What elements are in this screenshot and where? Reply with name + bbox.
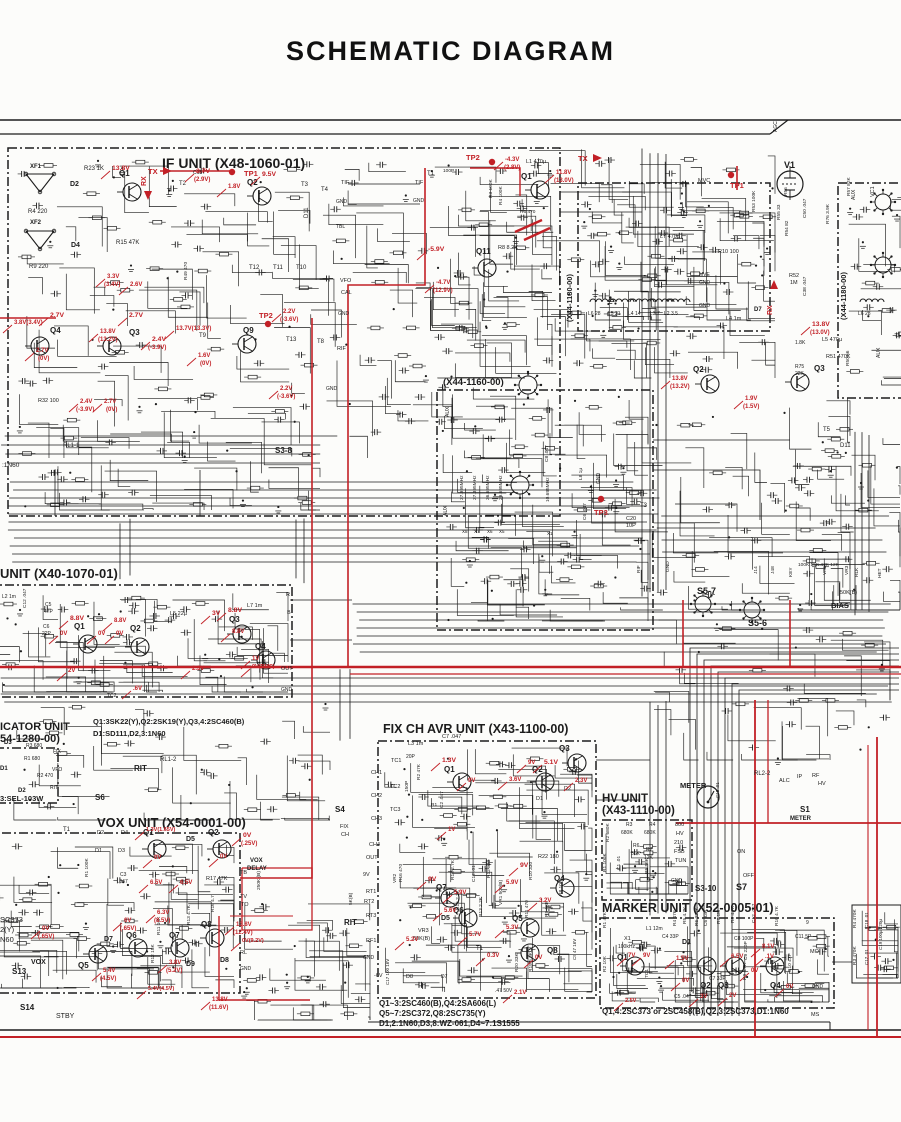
annotation-pointer (509, 868, 518, 876)
mesh-wire (282, 721, 294, 739)
junction-dot (660, 985, 662, 987)
junction-dot (408, 793, 410, 795)
mesh-wire (616, 359, 670, 378)
unit-label-af-unit: UNIT (X40-1070-01) (0, 566, 118, 581)
component-label: Q6 (126, 931, 137, 940)
mesh-wire (629, 400, 643, 419)
component-label: R8 8.2K (498, 245, 518, 251)
component-label: 150P (404, 781, 410, 792)
junction-dot (836, 451, 838, 453)
voltage-annotation: 3.7V (196, 168, 210, 175)
component-label: 9V (363, 872, 370, 878)
mesh-wire (883, 438, 900, 444)
voltage-annotation: -4.3V (505, 157, 519, 163)
transistor-icon (459, 775, 468, 781)
mesh-wire (395, 360, 425, 382)
voltage-annotation: TP1 (730, 181, 744, 190)
rotary-switch-icon (527, 371, 529, 373)
junction-dot (868, 726, 870, 728)
rotary-switch-icon (528, 475, 530, 477)
mesh-wire (236, 666, 251, 682)
component-label: S3-8 (275, 446, 292, 455)
voltage-annotation: (12.4V) (233, 930, 253, 936)
mesh-wire (109, 363, 168, 386)
resistor-icon (594, 365, 603, 369)
junction-dot (574, 400, 576, 402)
component-label: L2 1m (2, 594, 16, 600)
unit-label-final-coil-unit: (X44-1180-00) (839, 272, 848, 320)
resistor-icon (571, 258, 580, 262)
component-label: C12 .047 (751, 903, 757, 923)
mesh-wire (753, 238, 764, 245)
component-label: 100P (443, 168, 454, 174)
resistor-icon (647, 341, 656, 345)
mesh-wire (884, 378, 901, 385)
voltage-annotation: 2.2V (280, 386, 292, 392)
junction-dot (406, 816, 408, 818)
mesh-wire (100, 661, 133, 684)
mesh-wire (479, 795, 533, 838)
rotary-switch-icon (870, 201, 872, 203)
junction-dot (610, 246, 612, 248)
component-label: Q4 (50, 326, 61, 335)
component-label: VR1 500(B) (498, 880, 504, 905)
mesh-wire (246, 1001, 254, 1020)
resistor-icon (843, 631, 852, 635)
component-label: TC2 (107, 693, 117, 699)
component-label: Q8 (547, 946, 558, 955)
component-label: R (286, 592, 290, 598)
component-label: AUX (851, 189, 857, 200)
component-label: HV (818, 781, 826, 787)
mesh-wire (702, 198, 746, 240)
mesh-wire (652, 533, 696, 557)
resistor-icon (201, 396, 210, 400)
component-label: -6V (374, 973, 383, 979)
resistor-icon (726, 168, 735, 172)
resistor-icon (832, 455, 841, 459)
semiconductor-note: D1:SD111,D2,3:1N60 (93, 729, 166, 738)
voltage-annotation: 5.1V (544, 759, 558, 766)
schematic-canvas: IF UNIT (X48-1060-01)(X44-1180-00)(X44-1… (0, 0, 901, 1122)
component-label: CH1 (371, 770, 382, 776)
voltage-annotation: 8.8V (232, 629, 244, 635)
semiconductor-note: Q5~7:2SC372,Q8:2SC735(Y) (379, 1009, 486, 1018)
component-label: MO (810, 949, 820, 955)
component-label: GND (812, 984, 824, 990)
voltage-annotation: (12.9V) (433, 288, 453, 294)
component-label: C9 47 16V (572, 939, 577, 960)
junction-dot (589, 208, 591, 210)
rotary-switch-icon (536, 393, 538, 395)
resistor-icon (863, 463, 872, 467)
mesh-wire (491, 548, 522, 578)
test-point-dot (728, 172, 734, 178)
component-label: V1 (784, 160, 795, 170)
component-label: 36.695MHz (485, 475, 491, 500)
junction-dot (15, 623, 17, 625)
voltage-annotation: 3.8V(3.4V) (14, 320, 43, 326)
rotary-switch-icon (714, 603, 716, 605)
resistor-icon (79, 884, 88, 888)
mesh-wire (66, 227, 76, 241)
junction-dot (97, 160, 99, 162)
rotary-switch-icon (540, 384, 542, 386)
voltage-annotation: 0V (682, 978, 689, 984)
rotary-switch-icon (870, 264, 872, 266)
rotary-switch-icon (518, 393, 520, 395)
mesh-wire (882, 380, 901, 385)
junction-dot (124, 662, 126, 664)
junction-dot (49, 241, 51, 243)
component-label: CH4 (369, 842, 380, 848)
junction-dot (226, 450, 228, 452)
component-label: D7 (104, 936, 113, 943)
component-label: HET (877, 568, 883, 578)
resistor-icon (22, 452, 31, 456)
resistor-icon (613, 326, 622, 330)
junction-dot (443, 838, 445, 840)
resistor-icon (290, 196, 299, 200)
junction-dot (716, 623, 718, 625)
component-label: D3 (4, 740, 12, 746)
mesh-wire (568, 971, 592, 983)
junction-dot (634, 865, 636, 867)
mesh-wire (18, 938, 76, 958)
component-label: STBY (56, 1013, 75, 1020)
mesh-wire (897, 467, 900, 484)
component-label: CH2 (371, 793, 382, 799)
mesh-wire (838, 533, 850, 569)
mesh-wire (692, 551, 729, 576)
resistor-icon (149, 971, 158, 975)
voltage-annotation: 2.3V (192, 666, 204, 672)
junction-dot (260, 181, 262, 183)
junction-dot (515, 237, 517, 239)
resistor-icon (536, 964, 545, 968)
component-label: TO (241, 902, 249, 908)
component-label: AUX (443, 505, 449, 516)
mesh-wire (184, 194, 235, 206)
mesh-wire (28, 423, 49, 458)
component-label: R7 1M (716, 910, 722, 924)
mesh-wire (173, 767, 231, 803)
junction-dot (654, 872, 656, 874)
annotation-pointer (395, 942, 404, 950)
component-label: RT2 (364, 899, 374, 905)
junction-dot (19, 426, 21, 428)
resistor-icon (136, 160, 145, 164)
junction-dot (549, 170, 551, 172)
resistor-icon (825, 449, 834, 453)
resistor-icon (153, 220, 162, 224)
mesh-wire (671, 179, 684, 215)
component-label: T4 (321, 187, 329, 193)
voltage-annotation: 1.9V (745, 396, 757, 402)
component-label: RIF (337, 346, 347, 352)
junction-dot (324, 703, 326, 705)
annotation-pointer (498, 782, 507, 790)
voltage-annotation: TX (578, 154, 588, 163)
resistor-icon (219, 252, 228, 256)
mesh-wire (324, 937, 367, 951)
resistor-icon (407, 326, 416, 330)
component-label: R4 100K (498, 186, 504, 205)
mesh-wire (617, 974, 648, 989)
mesh-wire (301, 1005, 348, 1020)
mesh-wire (583, 901, 592, 921)
mesh-wire (274, 211, 296, 254)
voltage-annotation: (0V) (38, 356, 49, 362)
resistor-icon (349, 944, 358, 948)
junction-dot (614, 302, 616, 304)
resistor-icon (247, 979, 256, 983)
junction-dot (639, 548, 641, 550)
component-label: T12 (249, 265, 260, 271)
component-label: C6 (43, 624, 50, 630)
mesh-wire (522, 199, 548, 206)
mesh-wire (348, 191, 357, 205)
voltage-annotation: .6V (133, 686, 142, 692)
junction-dot (57, 892, 59, 894)
rotary-switch-icon (693, 594, 695, 596)
junction-dot (761, 274, 763, 276)
component-label: TC1 (391, 758, 401, 764)
voltage-annotation: (3.4V) (104, 282, 120, 288)
component-label: B (287, 610, 291, 616)
mesh-wire (23, 979, 77, 988)
voltage-annotation: (0V) (106, 407, 117, 413)
annotation-pointer (185, 174, 194, 182)
component-label: C2 .047 (439, 791, 445, 808)
mesh-wire (28, 277, 42, 294)
mesh-wire (450, 259, 470, 304)
component-label: R4 (649, 822, 656, 828)
component-label: OUT (281, 666, 293, 672)
annotation-pointer (217, 189, 226, 197)
resistor-icon (76, 601, 85, 605)
junction-dot (69, 472, 71, 474)
component-label: X6 (487, 529, 493, 534)
mesh-wire (458, 215, 514, 226)
junction-dot (112, 308, 114, 310)
mesh-wire (769, 654, 814, 677)
mesh-wire (355, 984, 370, 994)
mesh-wire (341, 985, 370, 1003)
annotation-pointer (545, 175, 554, 183)
mesh-wire (194, 468, 237, 490)
junction-dot (349, 403, 351, 405)
resistor-icon (303, 453, 312, 457)
component-label: 37.395MHz (472, 475, 478, 500)
mesh-wire (754, 708, 802, 730)
resistor-icon (598, 232, 607, 236)
mesh-wire (799, 988, 829, 1002)
component-label: Q4 (770, 981, 781, 990)
annotation-pointer (221, 634, 230, 642)
bus-line (725, 678, 899, 1016)
mesh-wire (308, 904, 370, 920)
mesh-wire (298, 761, 330, 770)
component-label: KEY (788, 567, 794, 577)
transistor-icon (129, 939, 147, 957)
voltage-annotation: TP2 (466, 153, 480, 162)
voltage-annotation: 6.5V (180, 880, 192, 886)
resistor-icon (490, 575, 499, 579)
component-label: 10.695MHz (545, 477, 551, 502)
rotary-switch-icon (890, 272, 892, 274)
mesh-wire (680, 491, 715, 536)
junction-dot (504, 917, 506, 919)
voltage-annotation: 11.8V (556, 170, 571, 176)
junction-dot (708, 205, 710, 207)
mesh-wire (532, 219, 552, 254)
junction-dot (208, 858, 210, 860)
junction-dot (15, 904, 17, 906)
component-label: TV (240, 894, 247, 900)
component-label: RIT (344, 918, 357, 927)
component-label: Q1 (444, 765, 455, 774)
component-label: RL (240, 950, 247, 956)
mesh-wire (640, 164, 680, 199)
voltage-annotation: 5.9V (454, 890, 466, 896)
mesh-wire (63, 425, 112, 441)
mesh-wire (883, 975, 898, 978)
component-label: AGC (773, 121, 779, 132)
junction-dot (590, 486, 592, 488)
junction-dot (556, 851, 558, 853)
resistor-icon (23, 898, 32, 902)
component-label: ON (737, 849, 745, 855)
component-label: R76 3.9K (825, 203, 831, 224)
mesh-wire (755, 453, 767, 483)
mesh-wire (682, 202, 741, 211)
junction-dot (406, 836, 408, 838)
mesh-wire (891, 199, 901, 210)
mesh-wire (793, 466, 851, 476)
junction-dot (849, 208, 851, 210)
component-label: D9 (186, 961, 195, 968)
junction-dot (585, 873, 587, 875)
component-label: D4 (71, 242, 80, 249)
mesh-wire (557, 954, 569, 982)
rotary-switch-icon (890, 209, 892, 211)
mesh-wire (413, 888, 439, 925)
junction-dot (651, 891, 653, 893)
mesh-wire (281, 246, 316, 280)
mesh-wire (496, 347, 557, 373)
component-label: T3 (301, 182, 309, 188)
mesh-wire (655, 347, 688, 373)
junction-dot (425, 375, 427, 377)
junction-dot (172, 865, 174, 867)
component-label: R16 470 (398, 864, 404, 882)
component-label: R2 10K (602, 955, 608, 972)
component-label: 1M (790, 280, 798, 286)
voltage-annotation: 13.8V (100, 329, 116, 335)
resistor-icon (204, 393, 213, 397)
rotary-switch-icon (882, 213, 884, 215)
component-label: C12 .047 (22, 588, 28, 608)
component-label: 47P (44, 609, 54, 615)
transistor-icon (85, 646, 94, 652)
red-bus-wire (524, 228, 550, 240)
rotary-switch-icon (519, 471, 521, 473)
mesh-wire (654, 710, 671, 736)
resistor-icon (462, 208, 471, 212)
component-label: 1.8K (795, 340, 806, 346)
annotation-pointer (25, 353, 34, 361)
resistor-icon (817, 935, 826, 939)
resistor-icon (686, 554, 695, 558)
mesh-wire (751, 360, 775, 378)
voltage-annotation: 0V (751, 968, 758, 974)
resistor-icon (684, 158, 693, 162)
component-label: 22P (42, 631, 52, 637)
annotation-pointer (431, 763, 440, 771)
voltage-annotation: (4.5V) (100, 976, 116, 982)
voltage-annotation: 13.8V (812, 321, 830, 328)
junction-dot (261, 903, 263, 905)
mesh-wire (433, 289, 477, 327)
mesh-wire (522, 490, 563, 526)
mesh-wire (333, 250, 389, 263)
component-label: VOX (250, 858, 263, 864)
voltage-annotation: 8.8V (70, 615, 84, 622)
mesh-wire (739, 342, 775, 360)
voltage-annotation: 3V (212, 610, 221, 617)
mesh-wire (654, 523, 695, 563)
junction-dot (506, 270, 508, 272)
mesh-wire (163, 844, 193, 874)
mesh-wire (898, 486, 900, 495)
junction-dot (896, 214, 898, 216)
component-label: D2 (564, 786, 571, 792)
component-label: 10P (626, 523, 636, 529)
annotation-pointer (165, 331, 174, 339)
mesh-wire (452, 398, 515, 419)
component-label: RL2-2 (754, 771, 771, 777)
component-label: 100K 15K 47K 12K (798, 562, 840, 568)
schematic-page: SCHEMATIC DIAGRAM IF UNIT (X48-1060-01)(… (0, 0, 901, 1122)
component-label: R54 82 (784, 220, 790, 236)
junction-dot (410, 906, 412, 908)
component-label: D4 (121, 830, 128, 836)
component-label: R5 56K (644, 857, 650, 874)
mesh-wire (212, 686, 263, 692)
component-label: C50 .047 (802, 198, 808, 218)
resistor-icon (39, 882, 48, 886)
component-label: T1 (476, 946, 484, 952)
resistor-icon (866, 281, 875, 285)
mesh-wire (684, 733, 699, 760)
component-label: D11 (304, 207, 310, 218)
rotary-switch-icon (506, 484, 508, 486)
resistor-icon (72, 705, 81, 709)
component-label: GND (363, 955, 375, 961)
mesh-wire (797, 698, 827, 736)
component-label: T11 (273, 265, 284, 271)
junction-dot (777, 757, 779, 759)
mesh-wire (219, 877, 234, 921)
rotary-switch-icon (519, 497, 521, 499)
resistor-icon (4, 602, 13, 606)
junction-dot (167, 277, 169, 279)
component-label: TB (240, 870, 247, 876)
component-label: 20P (406, 754, 416, 760)
resistor-icon (157, 605, 166, 609)
resistor-icon (398, 354, 407, 358)
